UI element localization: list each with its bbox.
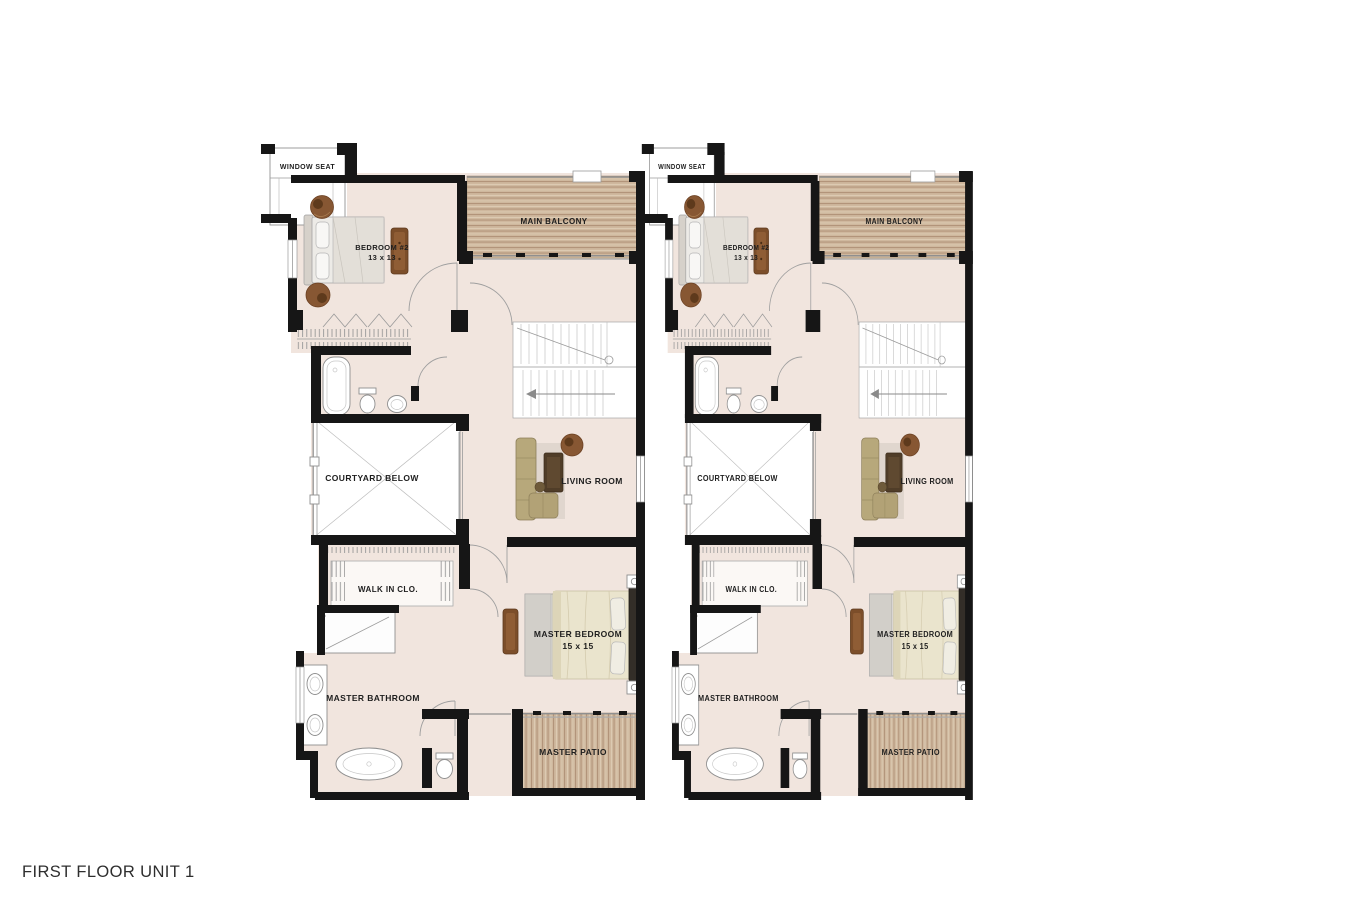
master-patio-label: MASTER PATIO: [539, 747, 607, 757]
main-balcony-label: MAIN BALCONY: [520, 217, 587, 226]
media-console: [886, 453, 902, 492]
plant: [561, 434, 583, 456]
bedroom2-label: BEDROOM #2: [355, 243, 409, 252]
chaise: [873, 493, 898, 518]
chaise: [529, 493, 558, 518]
sink: [388, 396, 407, 413]
freestanding-tub: [336, 748, 402, 780]
toilet: [793, 753, 808, 779]
toilet: [726, 388, 741, 413]
window-seat: [650, 148, 715, 225]
window-seat: [270, 148, 345, 225]
shower: [320, 612, 395, 653]
courtyard-label: COURTYARD BELOW: [325, 473, 419, 483]
window-seat-label: WINDOW SEAT: [658, 164, 705, 171]
bench: [850, 609, 863, 654]
living-room-label: LIVING ROOM: [901, 477, 954, 487]
media-console: [544, 453, 563, 492]
master-bedroom-label: MASTER BEDROOM: [534, 629, 622, 639]
unit-2-plan: WINDOW SEAT MAIN BALCONY BEDROOM #2 13 x…: [642, 143, 973, 800]
toilet: [359, 388, 376, 413]
bench: [503, 609, 518, 654]
walk-in-closet: [697, 547, 811, 606]
master-bedroom-label: MASTER BEDROOM: [877, 630, 953, 640]
plant: [900, 434, 919, 456]
stool: [878, 482, 887, 492]
living-room-label: LIVING ROOM: [561, 476, 623, 486]
bedroom2-dim-label: 13 x 13: [368, 253, 396, 262]
main-balcony-label: MAIN BALCONY: [866, 217, 924, 227]
walk-in-closet-label: WALK IN CLO.: [358, 585, 418, 594]
floor-plan-page: WINDOW SEAT MAIN BALCONY BEDROOM #2 13 x…: [0, 0, 1352, 901]
plant: [306, 283, 330, 307]
unit-1-plan: WINDOW SEAT MAIN BALCONY BEDROOM #2 13 x…: [261, 143, 645, 800]
freestanding-tub: [706, 748, 763, 780]
master-patio-label: MASTER PATIO: [882, 748, 940, 758]
floor-plan-drawing: WINDOW SEAT MAIN BALCONY BEDROOM #2 13 x…: [0, 0, 1352, 901]
toilet: [436, 753, 453, 779]
courtyard-label: COURTYARD BELOW: [697, 474, 778, 484]
master-bathroom-label: MASTER BATHROOM: [326, 693, 420, 703]
stool: [535, 482, 545, 492]
plant: [311, 196, 334, 219]
window-seat-label: WINDOW SEAT: [280, 164, 336, 171]
shower: [693, 612, 758, 653]
plan-title: FIRST FLOOR UNIT 1: [22, 863, 195, 881]
bedroom2-dim-label: 13 x 13: [734, 255, 758, 262]
balcony-opening: [573, 171, 601, 182]
master-bathroom-label: MASTER BATHROOM: [698, 694, 779, 704]
staircase: [859, 322, 971, 418]
plant: [681, 283, 702, 307]
balcony-opening: [911, 171, 935, 182]
bedroom2-label: BEDROOM #2: [723, 245, 769, 252]
walk-in-closet-label: WALK IN CLO.: [726, 585, 778, 595]
master-bedroom-dim-label: 15 x 15: [562, 641, 593, 651]
master-bedroom-dim-label: 15 x 15: [902, 642, 929, 652]
plant: [684, 196, 704, 219]
sink: [751, 396, 767, 413]
walk-in-closet: [325, 547, 457, 606]
staircase: [513, 322, 643, 418]
